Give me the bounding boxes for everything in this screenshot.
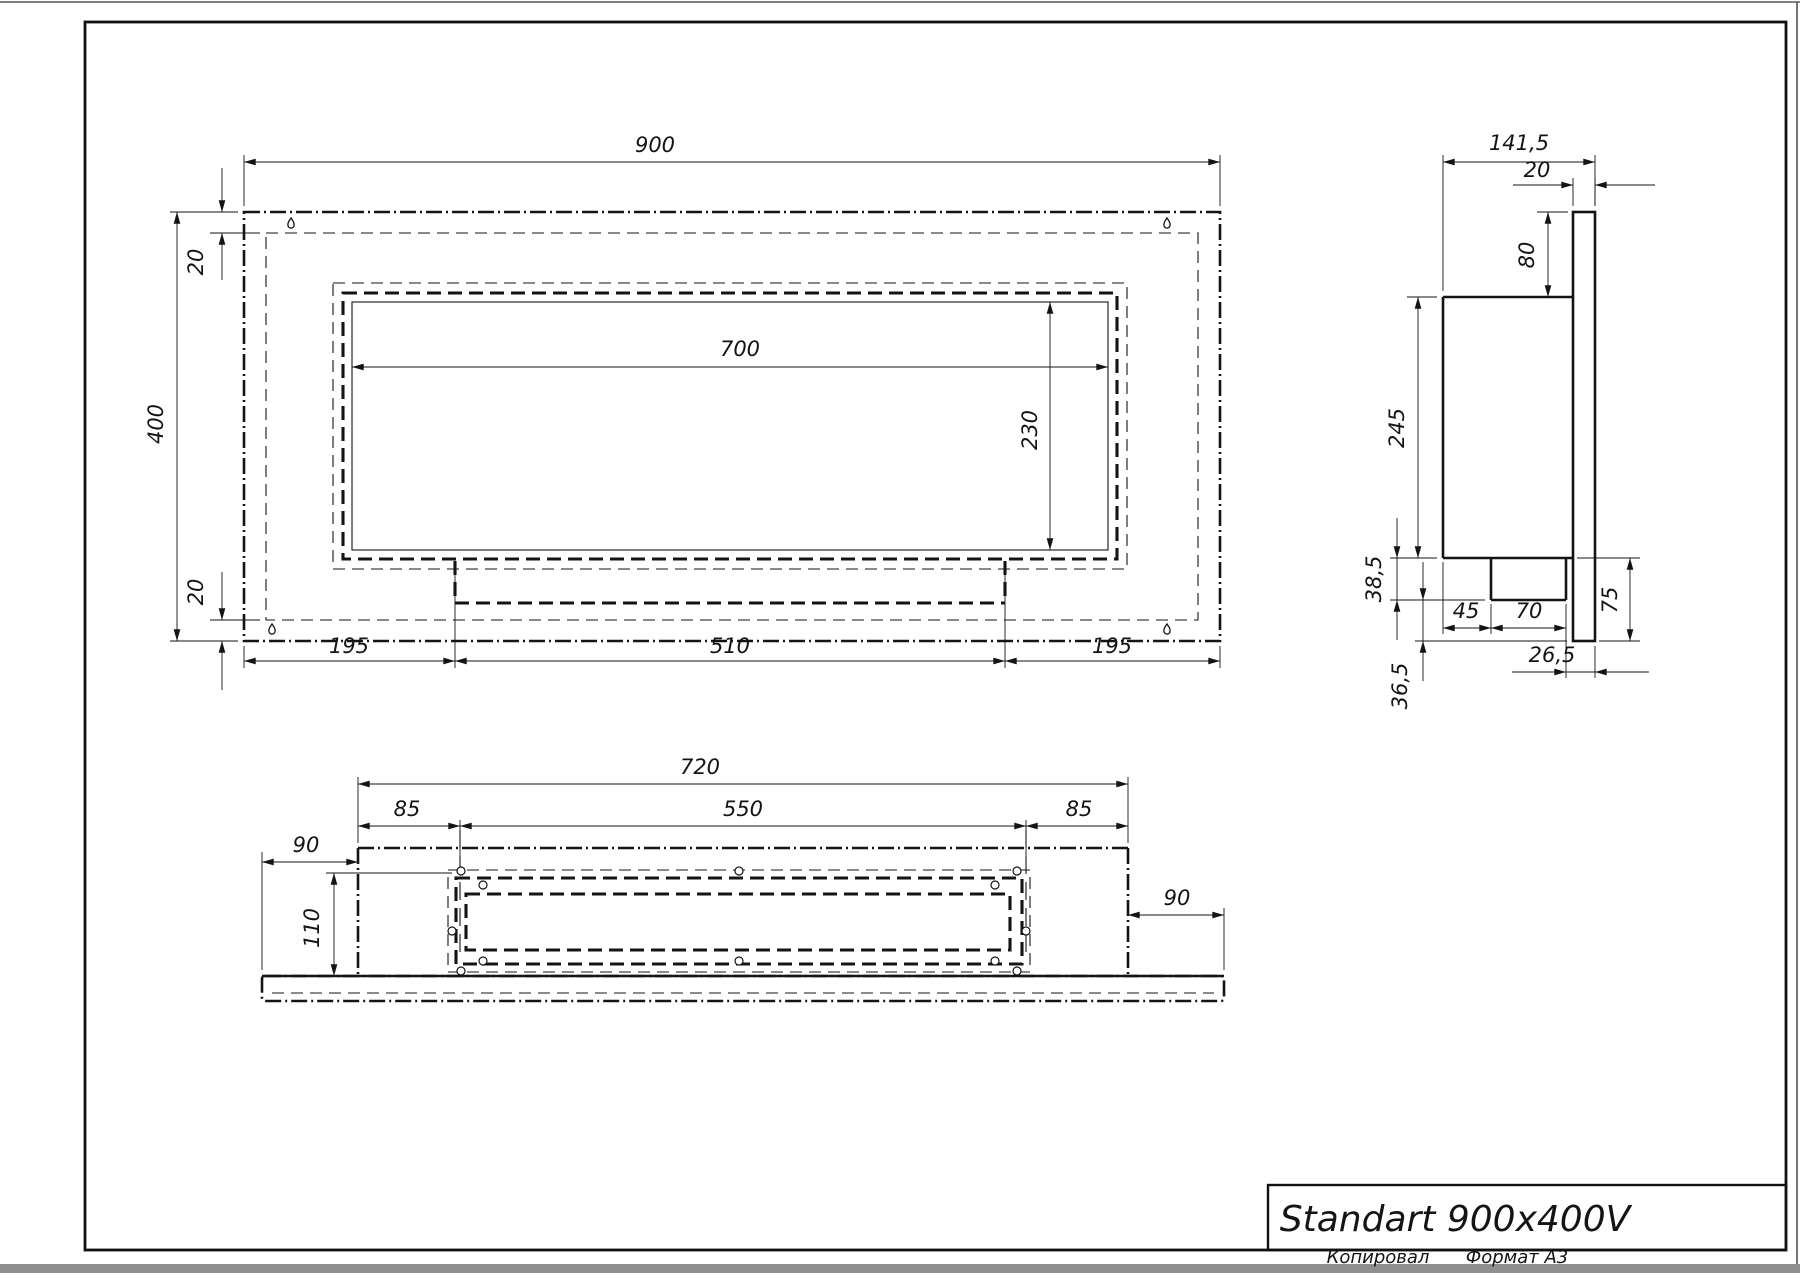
svg-text:90: 90 — [293, 833, 320, 857]
svg-text:550: 550 — [723, 797, 763, 821]
screw-hole-icon — [1022, 927, 1030, 935]
svg-text:195: 195 — [329, 634, 369, 658]
screw-hole-icon — [479, 881, 487, 889]
svg-text:141,5: 141,5 — [1489, 131, 1549, 155]
svg-text:720: 720 — [680, 755, 720, 779]
keyhole-icon — [269, 624, 275, 634]
svg-text:900: 900 — [635, 133, 675, 157]
svg-text:400: 400 — [144, 404, 168, 444]
front-burner-hidden — [455, 561, 1005, 603]
screw-hole-icon — [991, 957, 999, 965]
sheet-edges — [0, 2, 1800, 1273]
screw-hole-icon — [1013, 967, 1021, 975]
svg-text:85: 85 — [1066, 797, 1093, 821]
front-inner-offset — [266, 233, 1198, 620]
svg-text:70: 70 — [1516, 599, 1543, 623]
svg-text:20: 20 — [184, 249, 208, 276]
screw-hole-icon — [735, 957, 743, 965]
svg-text:45: 45 — [1453, 599, 1480, 623]
bottom-body-outline — [262, 848, 1224, 976]
svg-text:90: 90 — [1164, 886, 1191, 910]
dim-side-top-offset: 80 — [1515, 212, 1568, 297]
dim-front-opening-width: 700 — [352, 337, 1108, 367]
footer-format-label: Формат А3 — [1466, 1247, 1569, 1268]
screw-hole-icon — [479, 957, 487, 965]
dim-front-overall-width: 900 — [244, 133, 1220, 206]
svg-text:700: 700 — [720, 337, 760, 361]
front-opening-mid — [343, 293, 1117, 559]
svg-text:20: 20 — [184, 579, 208, 606]
screw-hole-icon — [448, 927, 456, 935]
side-body — [1443, 297, 1573, 558]
dim-front-bottom-row: 195 510 195 — [244, 563, 1220, 668]
svg-text:195: 195 — [1092, 634, 1132, 658]
bottom-mounting-plate — [262, 976, 1224, 1001]
dim-front-top-inset: 20 — [184, 168, 260, 280]
dim-side-lower-gap: 36,5 — [1388, 562, 1567, 709]
dim-bottom-plate-right: 90 — [1128, 886, 1224, 970]
svg-text:510: 510 — [710, 634, 750, 658]
svg-text:80: 80 — [1515, 242, 1539, 269]
svg-text:26,5: 26,5 — [1529, 643, 1576, 667]
bottom-opening-inner — [466, 894, 1010, 950]
footer-copied-label: Копировал — [1327, 1247, 1430, 1268]
dim-side-back-gap: 26,5 — [1512, 643, 1649, 678]
front-view: 900 400 20 20 700 — [144, 133, 1220, 690]
side-view: 141,5 20 80 245 38,5 — [1362, 131, 1655, 709]
svg-text:85: 85 — [394, 797, 421, 821]
front-opening-outer — [333, 283, 1127, 569]
front-outer-contour — [244, 212, 1220, 641]
keyhole-icon — [1164, 624, 1170, 634]
keyhole-icon — [1164, 218, 1170, 228]
svg-text:75: 75 — [1598, 587, 1622, 614]
svg-text:230: 230 — [1018, 410, 1042, 450]
screw-hole-icon — [735, 867, 743, 875]
dim-bottom-inner-row: 85 550 85 — [358, 797, 1128, 864]
dim-side-bottom-height: 75 — [1577, 558, 1640, 641]
svg-text:110: 110 — [300, 908, 324, 948]
screw-holes — [448, 867, 1030, 975]
screw-hole-icon — [457, 867, 465, 875]
dim-bottom-plate-left: 90 — [262, 833, 358, 970]
dim-front-bottom-inset: 20 — [184, 572, 260, 690]
bottom-view: 720 85 550 85 90 90 110 — [262, 755, 1224, 1001]
side-back-panel — [1573, 212, 1595, 641]
screw-hole-icon — [1013, 867, 1021, 875]
svg-text:38,5: 38,5 — [1362, 556, 1386, 603]
screw-hole-icon — [457, 967, 465, 975]
side-burner-box — [1491, 558, 1566, 600]
svg-text:36,5: 36,5 — [1388, 663, 1412, 710]
dim-front-opening-height: 230 — [1018, 302, 1050, 550]
svg-text:245: 245 — [1385, 408, 1409, 448]
keyhole-icon — [288, 218, 294, 228]
dim-side-body-height: 245 — [1385, 297, 1437, 558]
screw-hole-icon — [991, 881, 999, 889]
title-block: Standart 900x400V — [1268, 1185, 1786, 1250]
dim-bottom-inner-depth: 110 — [300, 873, 452, 976]
drawing-title: Standart 900x400V — [1280, 1199, 1633, 1240]
svg-text:20: 20 — [1524, 158, 1551, 182]
drawing-canvas: 900 400 20 20 700 — [0, 0, 1800, 1273]
dim-side-panel-thickness: 20 — [1513, 158, 1655, 206]
